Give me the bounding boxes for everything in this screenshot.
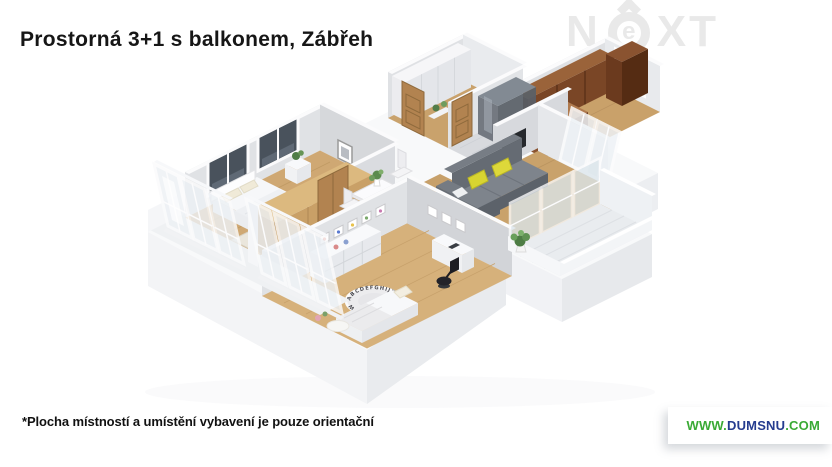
page-title: Prostorná 3+1 s balkonem, Zábřeh xyxy=(20,28,373,52)
floorplan-render: ABCDEFGHIJKLMNOPQRSTUVWXYZ xyxy=(0,0,832,467)
disclaimer-text: *Plocha místností a umístění vybavení je… xyxy=(22,414,374,429)
bathroom-door xyxy=(452,92,472,146)
website-name: DUMSNU xyxy=(727,418,785,433)
round-rug xyxy=(327,321,349,332)
website-prefix: WWW. xyxy=(686,418,727,433)
listing-image: N e XT xyxy=(0,0,832,467)
flower-decor xyxy=(315,315,321,321)
website-badge: WWW.DUMSNU.COM xyxy=(668,407,832,444)
website-suffix: .COM xyxy=(785,418,820,433)
green-decor xyxy=(323,312,328,317)
